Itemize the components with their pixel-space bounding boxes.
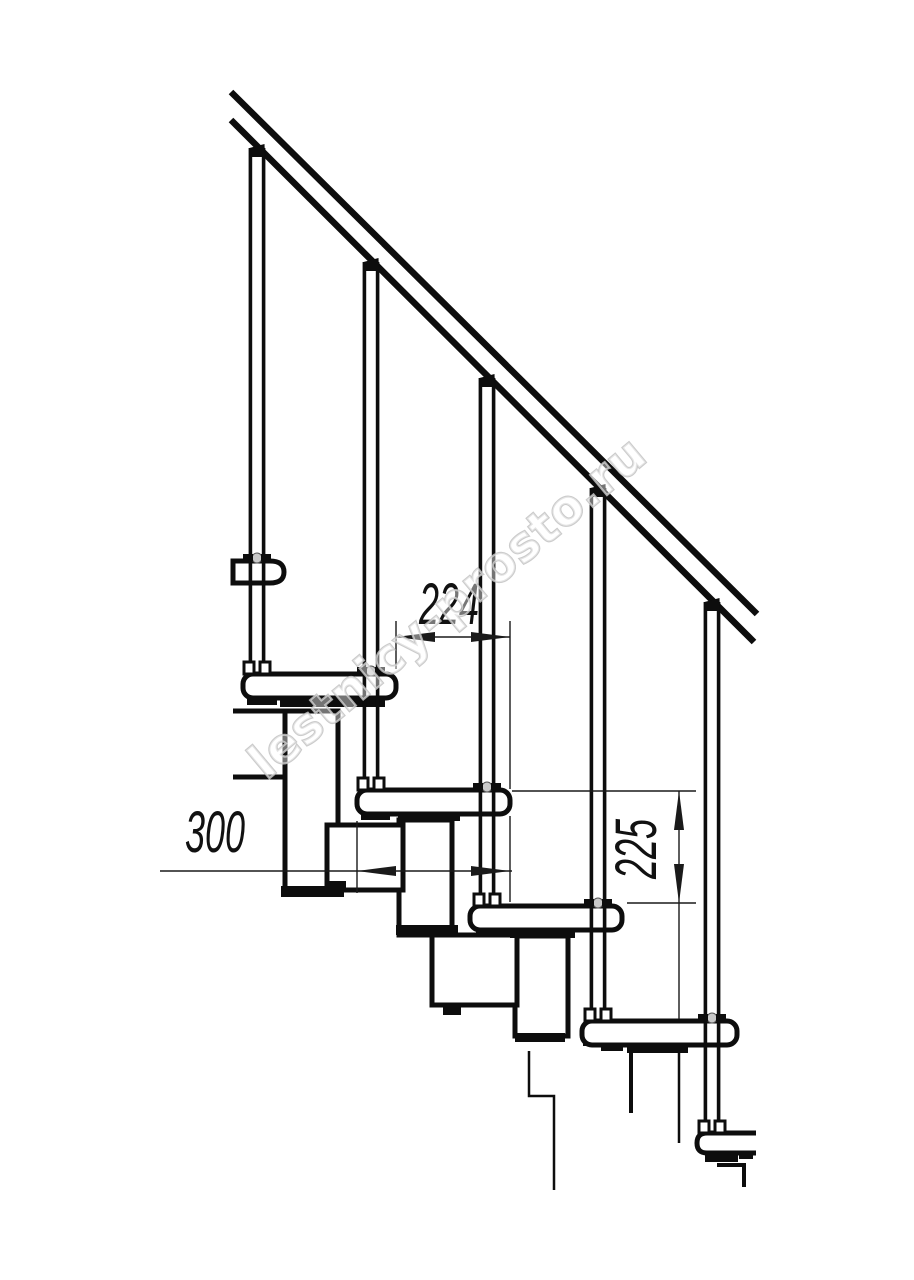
arrow-up-icon bbox=[674, 791, 684, 830]
staircase-drawing-canvas: 224 300 225 lestnicy-prosto.ru bbox=[0, 0, 914, 1280]
watermark: lestnicy-prosto.ru bbox=[238, 425, 657, 790]
tread-4 bbox=[582, 1021, 737, 1045]
module-bracket-5 bbox=[717, 1165, 744, 1187]
tread-0-end-view bbox=[233, 561, 284, 583]
baluster-1 bbox=[243, 144, 271, 675]
arrow-right-icon bbox=[471, 866, 510, 876]
dimension-depth-label: 300 bbox=[185, 800, 245, 865]
module-web-2 bbox=[399, 820, 452, 935]
tread-5 bbox=[697, 1133, 756, 1153]
dimension-riser-label: 225 bbox=[604, 819, 669, 880]
module-web-3 bbox=[515, 936, 568, 1036]
arrow-down-icon bbox=[674, 864, 684, 903]
module-box-3 bbox=[432, 935, 517, 1005]
module-box-2 bbox=[327, 825, 403, 890]
baluster-4 bbox=[584, 484, 612, 1022]
technical-drawing: 224 300 225 lestnicy-prosto.ru bbox=[0, 0, 914, 1280]
baluster-5 bbox=[698, 598, 726, 1134]
tread-3 bbox=[470, 906, 622, 930]
tread-2 bbox=[357, 790, 510, 814]
cropped-edge-lines bbox=[529, 1047, 679, 1190]
